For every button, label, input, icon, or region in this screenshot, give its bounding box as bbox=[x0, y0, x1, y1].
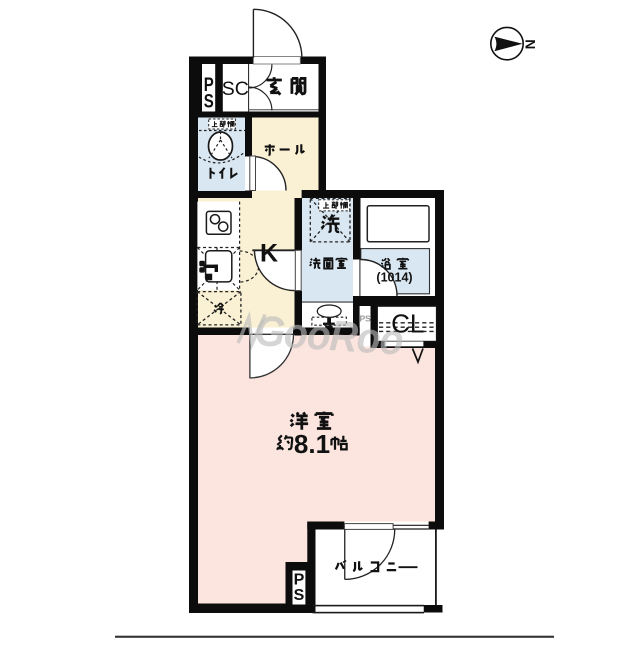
svg-text:N: N bbox=[522, 39, 538, 49]
svg-text:(1014): (1014) bbox=[376, 271, 412, 285]
svg-text:SC: SC bbox=[222, 78, 249, 100]
svg-text:GooRoo: GooRoo bbox=[253, 307, 404, 365]
svg-text:K: K bbox=[260, 240, 278, 268]
svg-text:P: P bbox=[294, 572, 305, 589]
svg-text:8.1: 8.1 bbox=[294, 429, 330, 459]
svg-text:S: S bbox=[294, 587, 305, 604]
svg-text:S: S bbox=[204, 92, 214, 113]
